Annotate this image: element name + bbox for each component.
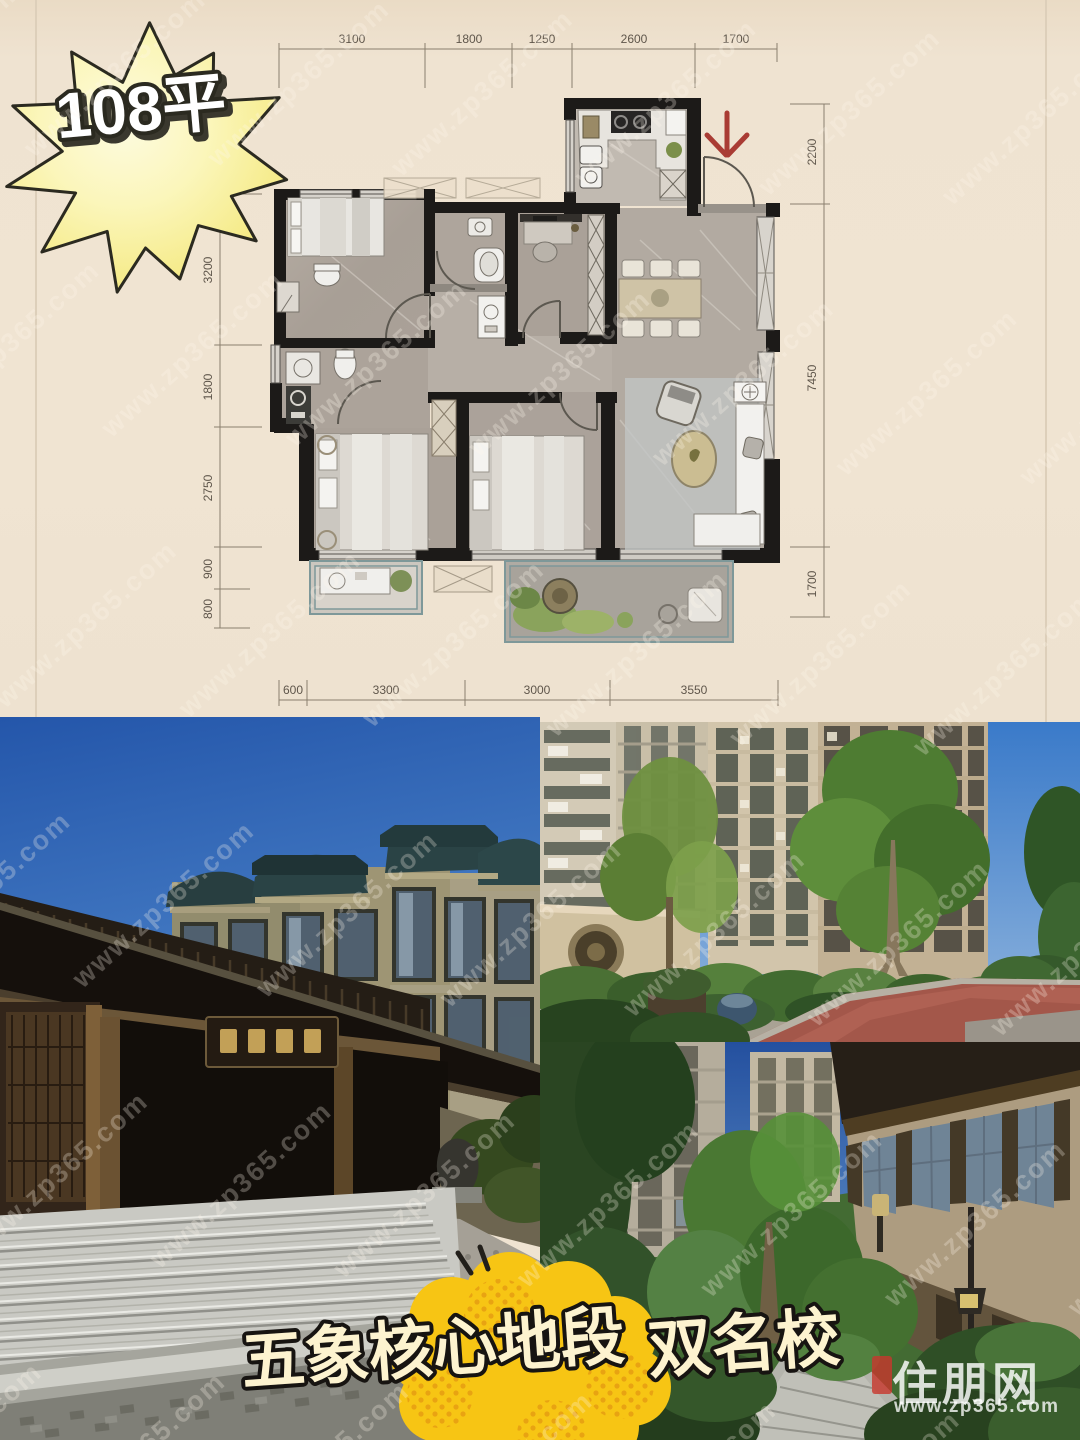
svg-text:双名校: 双名校 bbox=[646, 1301, 843, 1386]
svg-text:800: 800 bbox=[201, 599, 215, 619]
svg-text:3300: 3300 bbox=[373, 683, 400, 697]
svg-text:3100: 3100 bbox=[339, 32, 366, 46]
svg-text:1800: 1800 bbox=[201, 373, 215, 400]
svg-text:1800: 1800 bbox=[456, 32, 483, 46]
svg-text:108平: 108平 bbox=[53, 66, 229, 153]
svg-text:2750: 2750 bbox=[201, 474, 215, 501]
svg-text:900: 900 bbox=[201, 559, 215, 579]
svg-text:600: 600 bbox=[283, 683, 303, 697]
svg-text:3000: 3000 bbox=[524, 683, 551, 697]
svg-text:7450: 7450 bbox=[805, 364, 819, 391]
svg-text:1700: 1700 bbox=[723, 32, 750, 46]
svg-text:1250: 1250 bbox=[529, 32, 556, 46]
svg-text:3550: 3550 bbox=[681, 683, 708, 697]
svg-text:2600: 2600 bbox=[621, 32, 648, 46]
svg-text:2200: 2200 bbox=[805, 138, 819, 165]
svg-text:1700: 1700 bbox=[805, 570, 819, 597]
